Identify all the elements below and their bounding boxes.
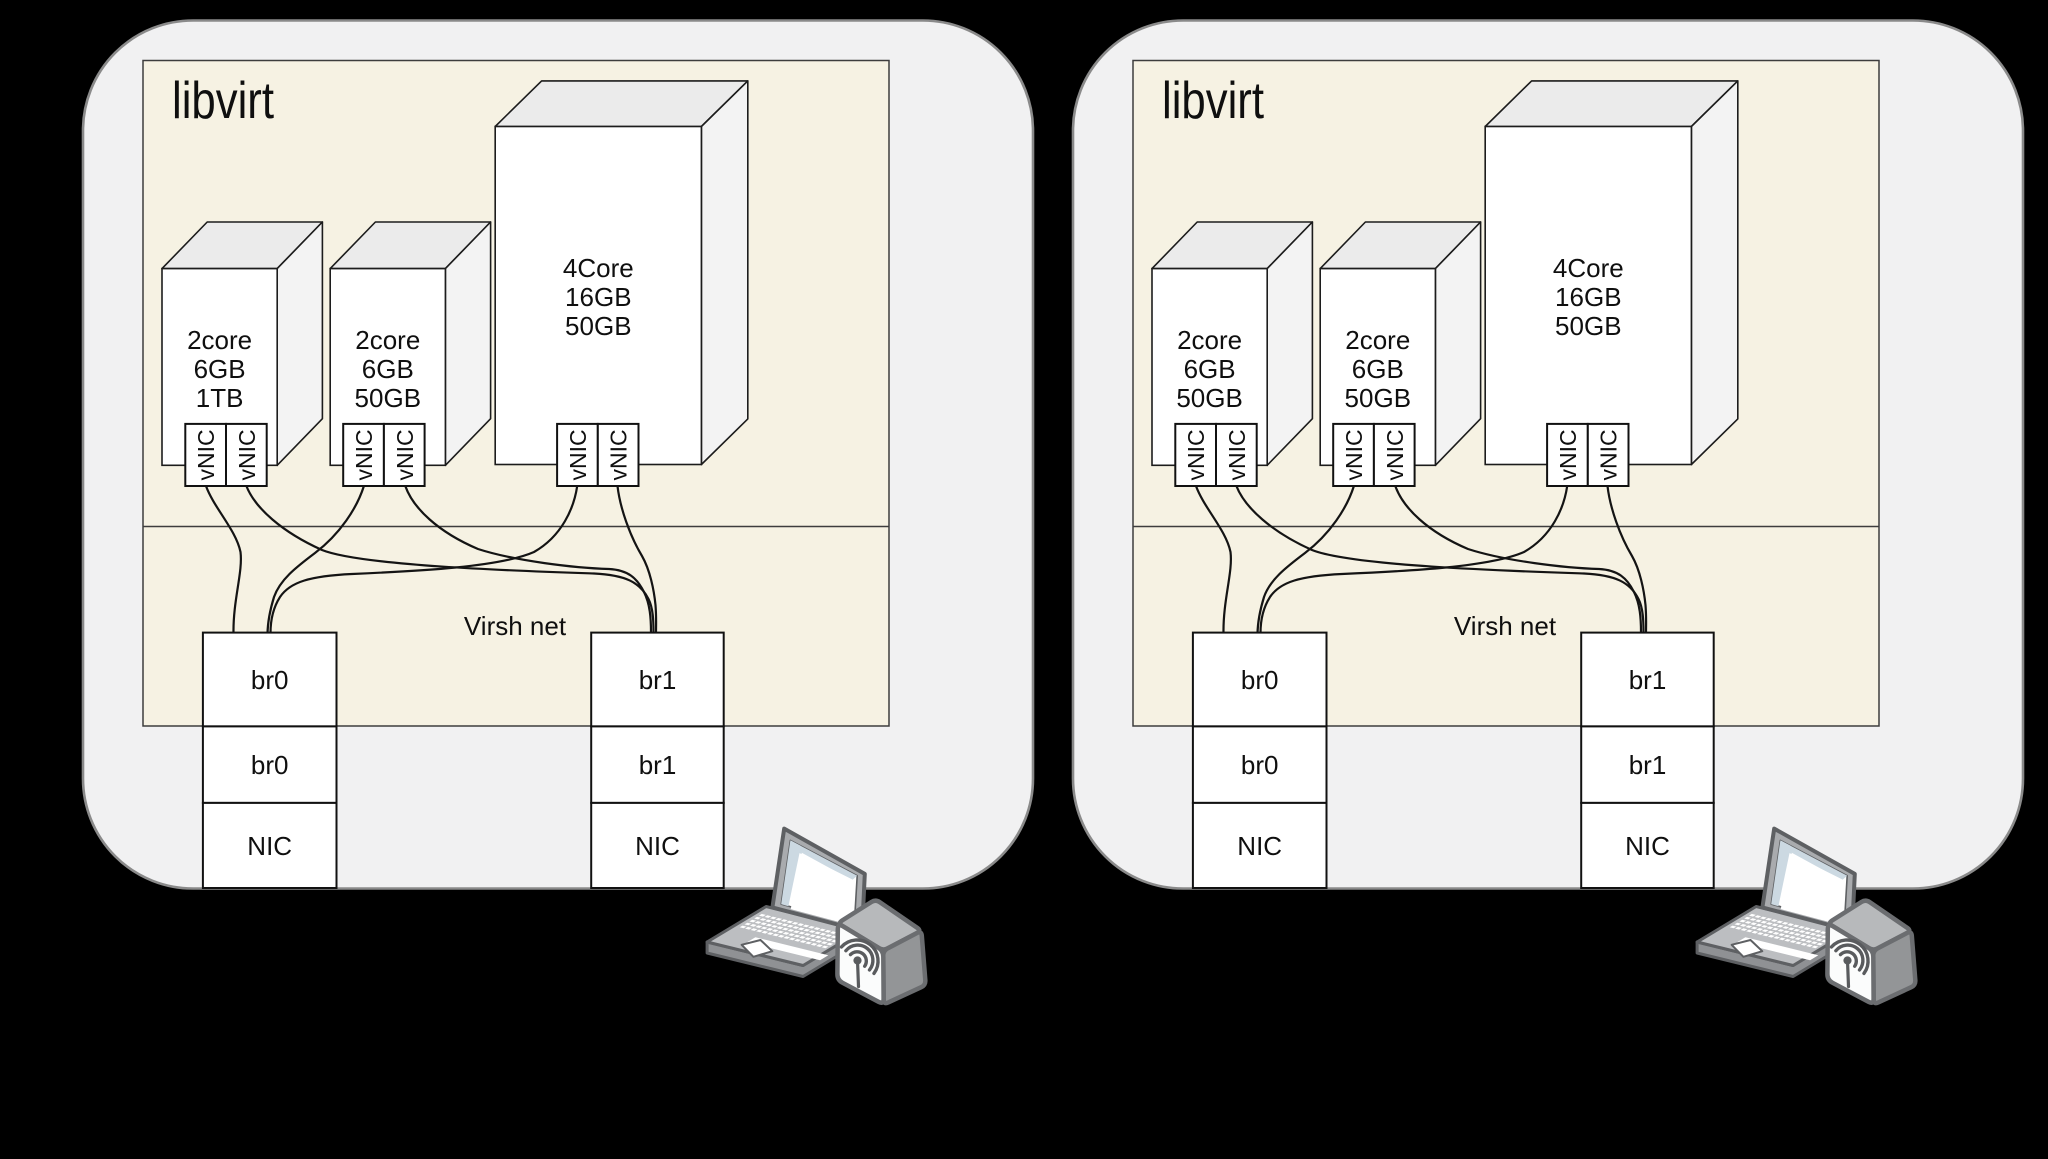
svg-text:50GB: 50GB <box>355 383 422 413</box>
svg-text:16GB: 16GB <box>1555 282 1622 312</box>
svg-text:4Core: 4Core <box>563 253 634 283</box>
svg-text:50GB: 50GB <box>565 311 632 341</box>
svg-text:vNIC: vNIC <box>1224 429 1250 480</box>
svg-text:vNIC: vNIC <box>1555 429 1581 480</box>
svg-text:vNIC: vNIC <box>392 429 418 480</box>
svg-text:br0: br0 <box>1241 665 1279 695</box>
svg-text:6GB: 6GB <box>362 354 414 384</box>
svg-text:vNIC: vNIC <box>234 429 260 480</box>
svg-text:NIC: NIC <box>247 831 292 861</box>
svg-text:vNIC: vNIC <box>606 429 632 480</box>
svg-text:libvirt: libvirt <box>172 72 274 130</box>
svg-text:4Core: 4Core <box>1553 253 1624 283</box>
svg-text:vNIC: vNIC <box>193 429 219 480</box>
svg-text:Virsh net: Virsh net <box>1454 611 1557 641</box>
svg-text:16GB: 16GB <box>565 282 632 312</box>
svg-text:NIC: NIC <box>1237 831 1282 861</box>
svg-text:br1: br1 <box>639 750 677 780</box>
svg-text:6GB: 6GB <box>194 354 246 384</box>
svg-text:NIC: NIC <box>1625 831 1670 861</box>
svg-text:2core: 2core <box>187 325 252 355</box>
svg-text:vNIC: vNIC <box>1183 429 1209 480</box>
svg-text:NIC: NIC <box>635 831 680 861</box>
svg-text:br0: br0 <box>1241 750 1279 780</box>
svg-text:2core: 2core <box>1177 325 1242 355</box>
svg-text:6GB: 6GB <box>1352 354 1404 384</box>
svg-text:br0: br0 <box>251 665 289 695</box>
svg-text:Virsh net: Virsh net <box>464 611 567 641</box>
svg-text:2core: 2core <box>355 325 420 355</box>
svg-text:vNIC: vNIC <box>565 429 591 480</box>
svg-text:6GB: 6GB <box>1184 354 1236 384</box>
svg-text:br1: br1 <box>1629 665 1667 695</box>
svg-text:1TB: 1TB <box>196 383 244 413</box>
svg-text:vNIC: vNIC <box>1382 429 1408 480</box>
svg-text:vNIC: vNIC <box>1596 429 1622 480</box>
svg-text:50GB: 50GB <box>1176 383 1243 413</box>
svg-text:50GB: 50GB <box>1345 383 1412 413</box>
svg-text:br1: br1 <box>639 665 677 695</box>
svg-text:2core: 2core <box>1345 325 1410 355</box>
svg-text:libvirt: libvirt <box>1162 72 1264 130</box>
svg-text:vNIC: vNIC <box>1341 429 1367 480</box>
svg-text:50GB: 50GB <box>1555 311 1622 341</box>
svg-text:br1: br1 <box>1629 750 1667 780</box>
svg-text:br0: br0 <box>251 750 289 780</box>
svg-text:vNIC: vNIC <box>351 429 377 480</box>
